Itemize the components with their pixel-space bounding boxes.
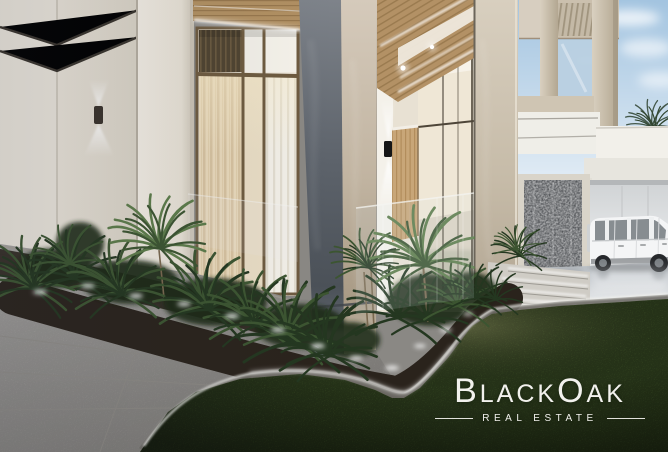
- tagline-rule-right: [607, 418, 645, 419]
- villa-exterior-photo: BLACKOAK REAL ESTATE: [0, 0, 668, 452]
- balcony-beam: [518, 96, 594, 114]
- water-feature-wall: [518, 174, 590, 274]
- entry-glass-balustrade: [356, 193, 474, 314]
- car-reflection: [592, 266, 668, 292]
- blackoak-logo: BLACKOAK REAL ESTATE: [420, 374, 660, 424]
- brand-tagline: REAL ESTATE: [420, 413, 660, 424]
- suv-car: [587, 216, 668, 292]
- brand-initial: O: [557, 372, 586, 410]
- dusk-overlay: [0, 0, 340, 452]
- brand-initial: B: [454, 372, 480, 410]
- brand-name: BLACKOAK: [420, 374, 660, 408]
- tagline-rule-left: [435, 418, 473, 419]
- tagline-text: REAL ESTATE: [482, 413, 597, 424]
- portal-marble-pillar: [474, 0, 518, 300]
